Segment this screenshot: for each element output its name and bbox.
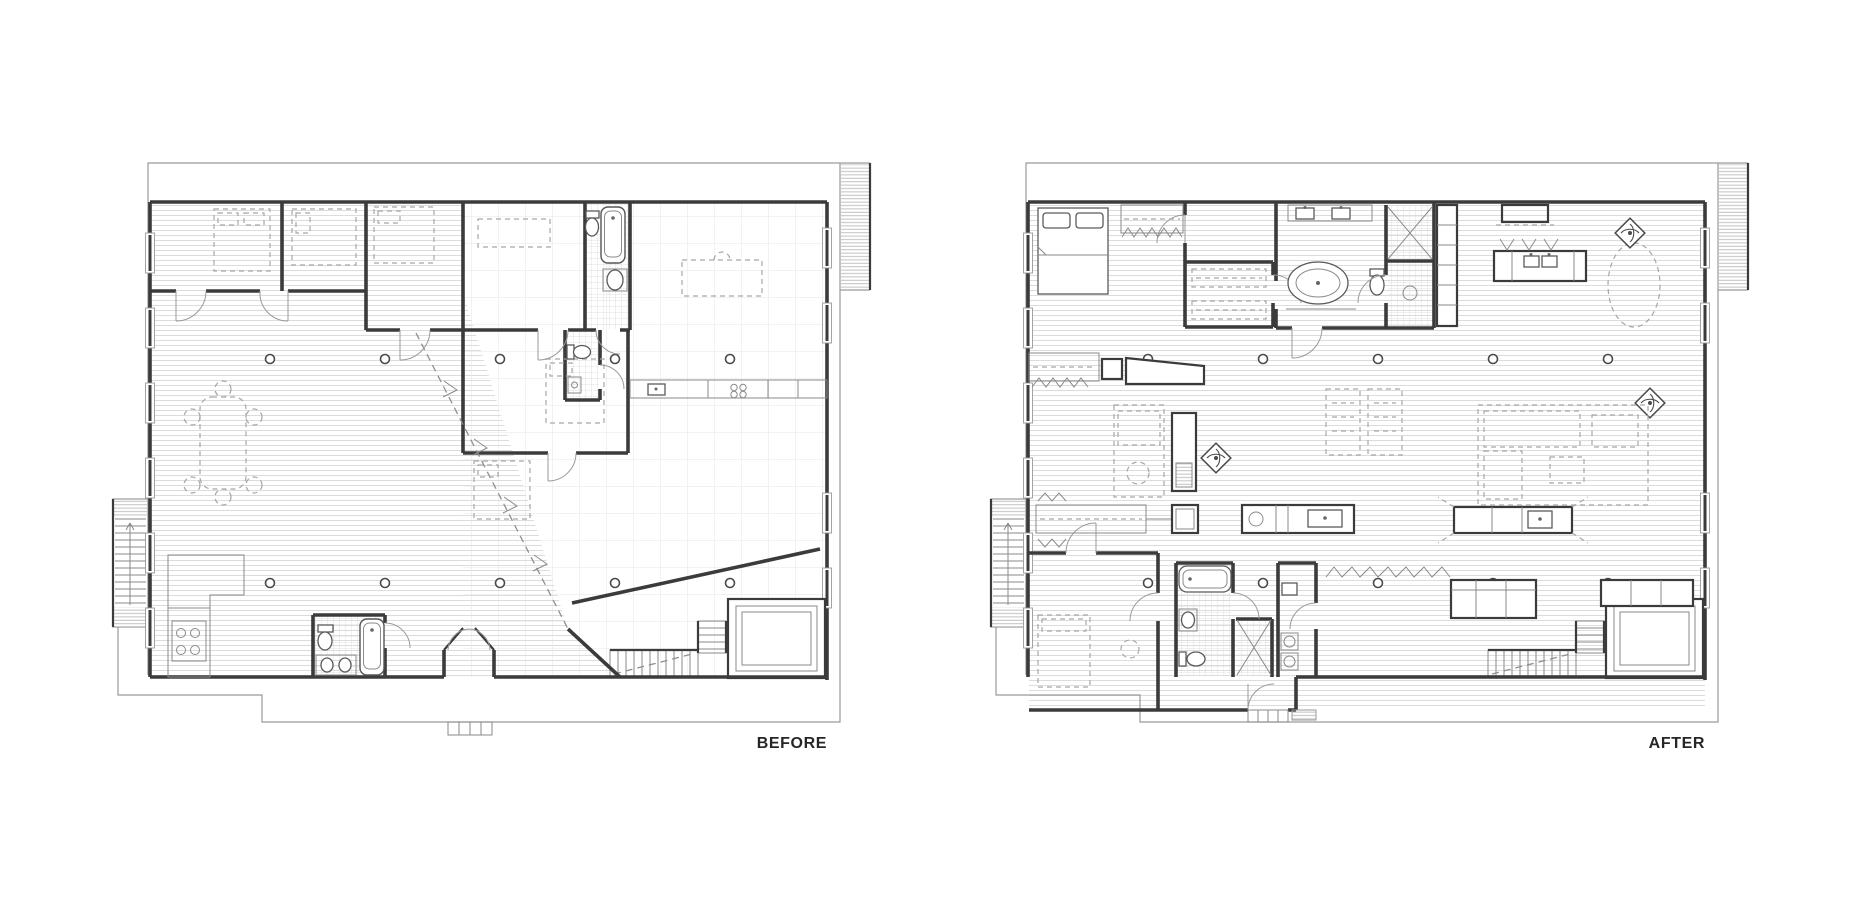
floor-plans-canvas: BEFORE: [0, 0, 1860, 910]
after-label: AFTER: [1649, 735, 1705, 752]
after-plan: AFTER: [991, 163, 1748, 752]
floor-plan-figure: BEFORE: [0, 0, 1860, 910]
before-plan: BEFORE: [113, 163, 870, 752]
before-floors: [151, 203, 826, 677]
before-label: BEFORE: [757, 735, 827, 752]
